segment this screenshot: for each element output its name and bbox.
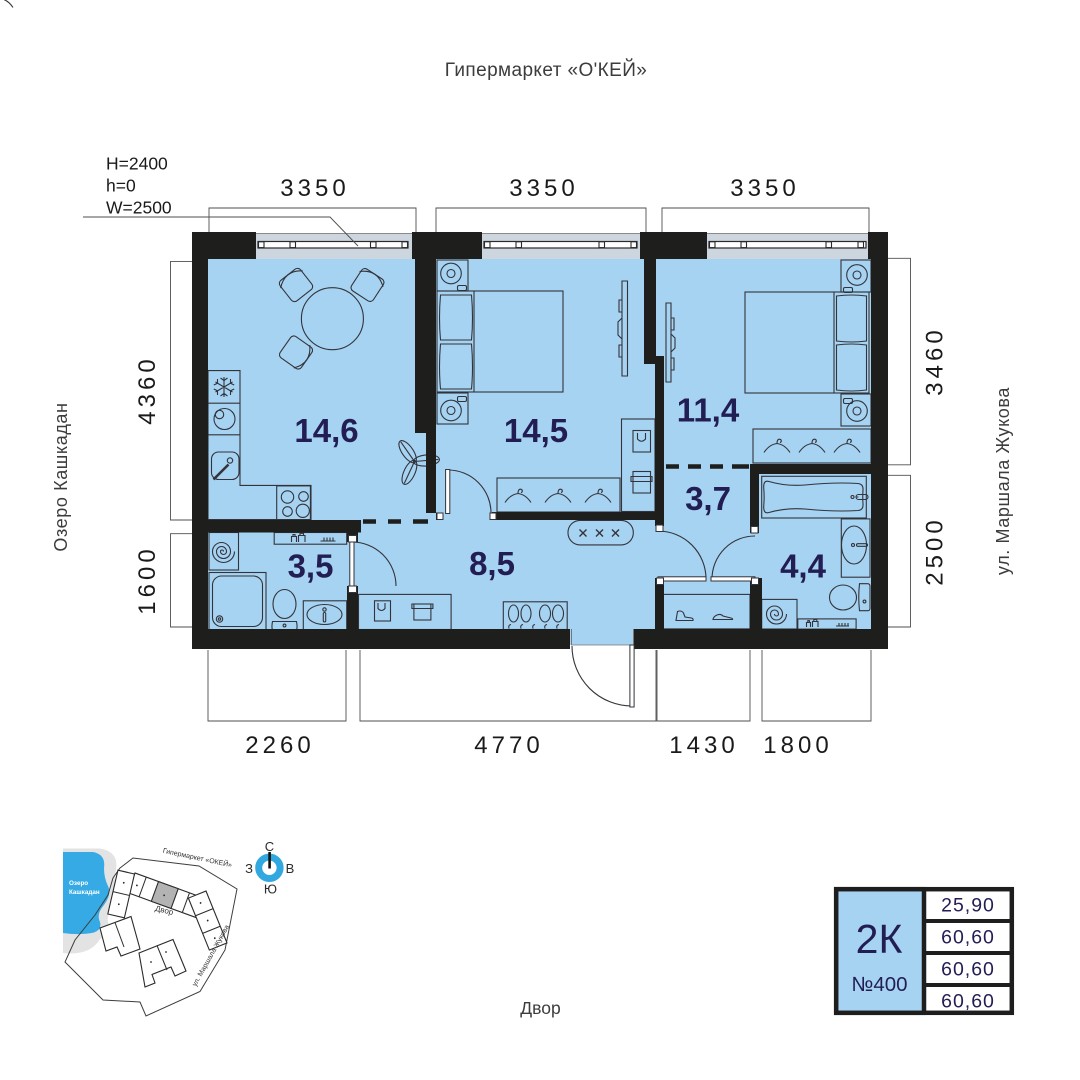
svg-text:3,7: 3,7 [685, 480, 731, 517]
svg-text:3,5: 3,5 [288, 548, 334, 585]
svg-text:З: З [245, 861, 253, 876]
svg-text:3350: 3350 [280, 175, 349, 202]
svg-text:4360: 4360 [134, 355, 161, 424]
svg-text:h=0: h=0 [106, 176, 136, 196]
svg-text:Гипермаркет «О'КЕЙ»: Гипермаркет «О'КЕЙ» [445, 59, 647, 81]
svg-text:11,4: 11,4 [677, 392, 740, 429]
svg-text:14,6: 14,6 [294, 412, 358, 449]
svg-text:№400: №400 [851, 973, 907, 996]
svg-text:2К: 2К [856, 916, 903, 962]
svg-text:Двор: Двор [520, 998, 560, 1018]
svg-text:W=2500: W=2500 [106, 198, 172, 218]
svg-text:3460: 3460 [922, 326, 949, 395]
svg-text:3350: 3350 [509, 175, 578, 202]
svg-text:14,5: 14,5 [504, 412, 568, 449]
svg-text:С: С [265, 839, 274, 854]
svg-text:60,60: 60,60 [941, 959, 995, 981]
svg-text:1430: 1430 [669, 732, 738, 759]
svg-text:Озеро: Озеро [69, 880, 88, 887]
svg-text:Ю: Ю [264, 882, 277, 897]
svg-text:4770: 4770 [474, 732, 543, 759]
svg-text:25,90: 25,90 [941, 895, 995, 917]
svg-text:Кашкадан: Кашкадан [69, 889, 100, 896]
svg-text:60,60: 60,60 [941, 927, 995, 949]
svg-text:В: В [286, 861, 295, 876]
svg-text:3350: 3350 [730, 175, 799, 202]
svg-text:4,4: 4,4 [780, 548, 827, 585]
svg-text:2260: 2260 [245, 732, 314, 759]
svg-text:ул. Маршала Жукова: ул. Маршала Жукова [993, 387, 1013, 575]
svg-text:1800: 1800 [763, 732, 832, 759]
svg-text:60,60: 60,60 [941, 991, 995, 1013]
svg-text:H=2400: H=2400 [106, 154, 168, 174]
svg-text:Озеро Кашкадан: Озеро Кашкадан [51, 402, 71, 551]
svg-text:2500: 2500 [922, 516, 949, 585]
svg-text:8,5: 8,5 [469, 545, 515, 582]
svg-text:1600: 1600 [134, 545, 161, 614]
